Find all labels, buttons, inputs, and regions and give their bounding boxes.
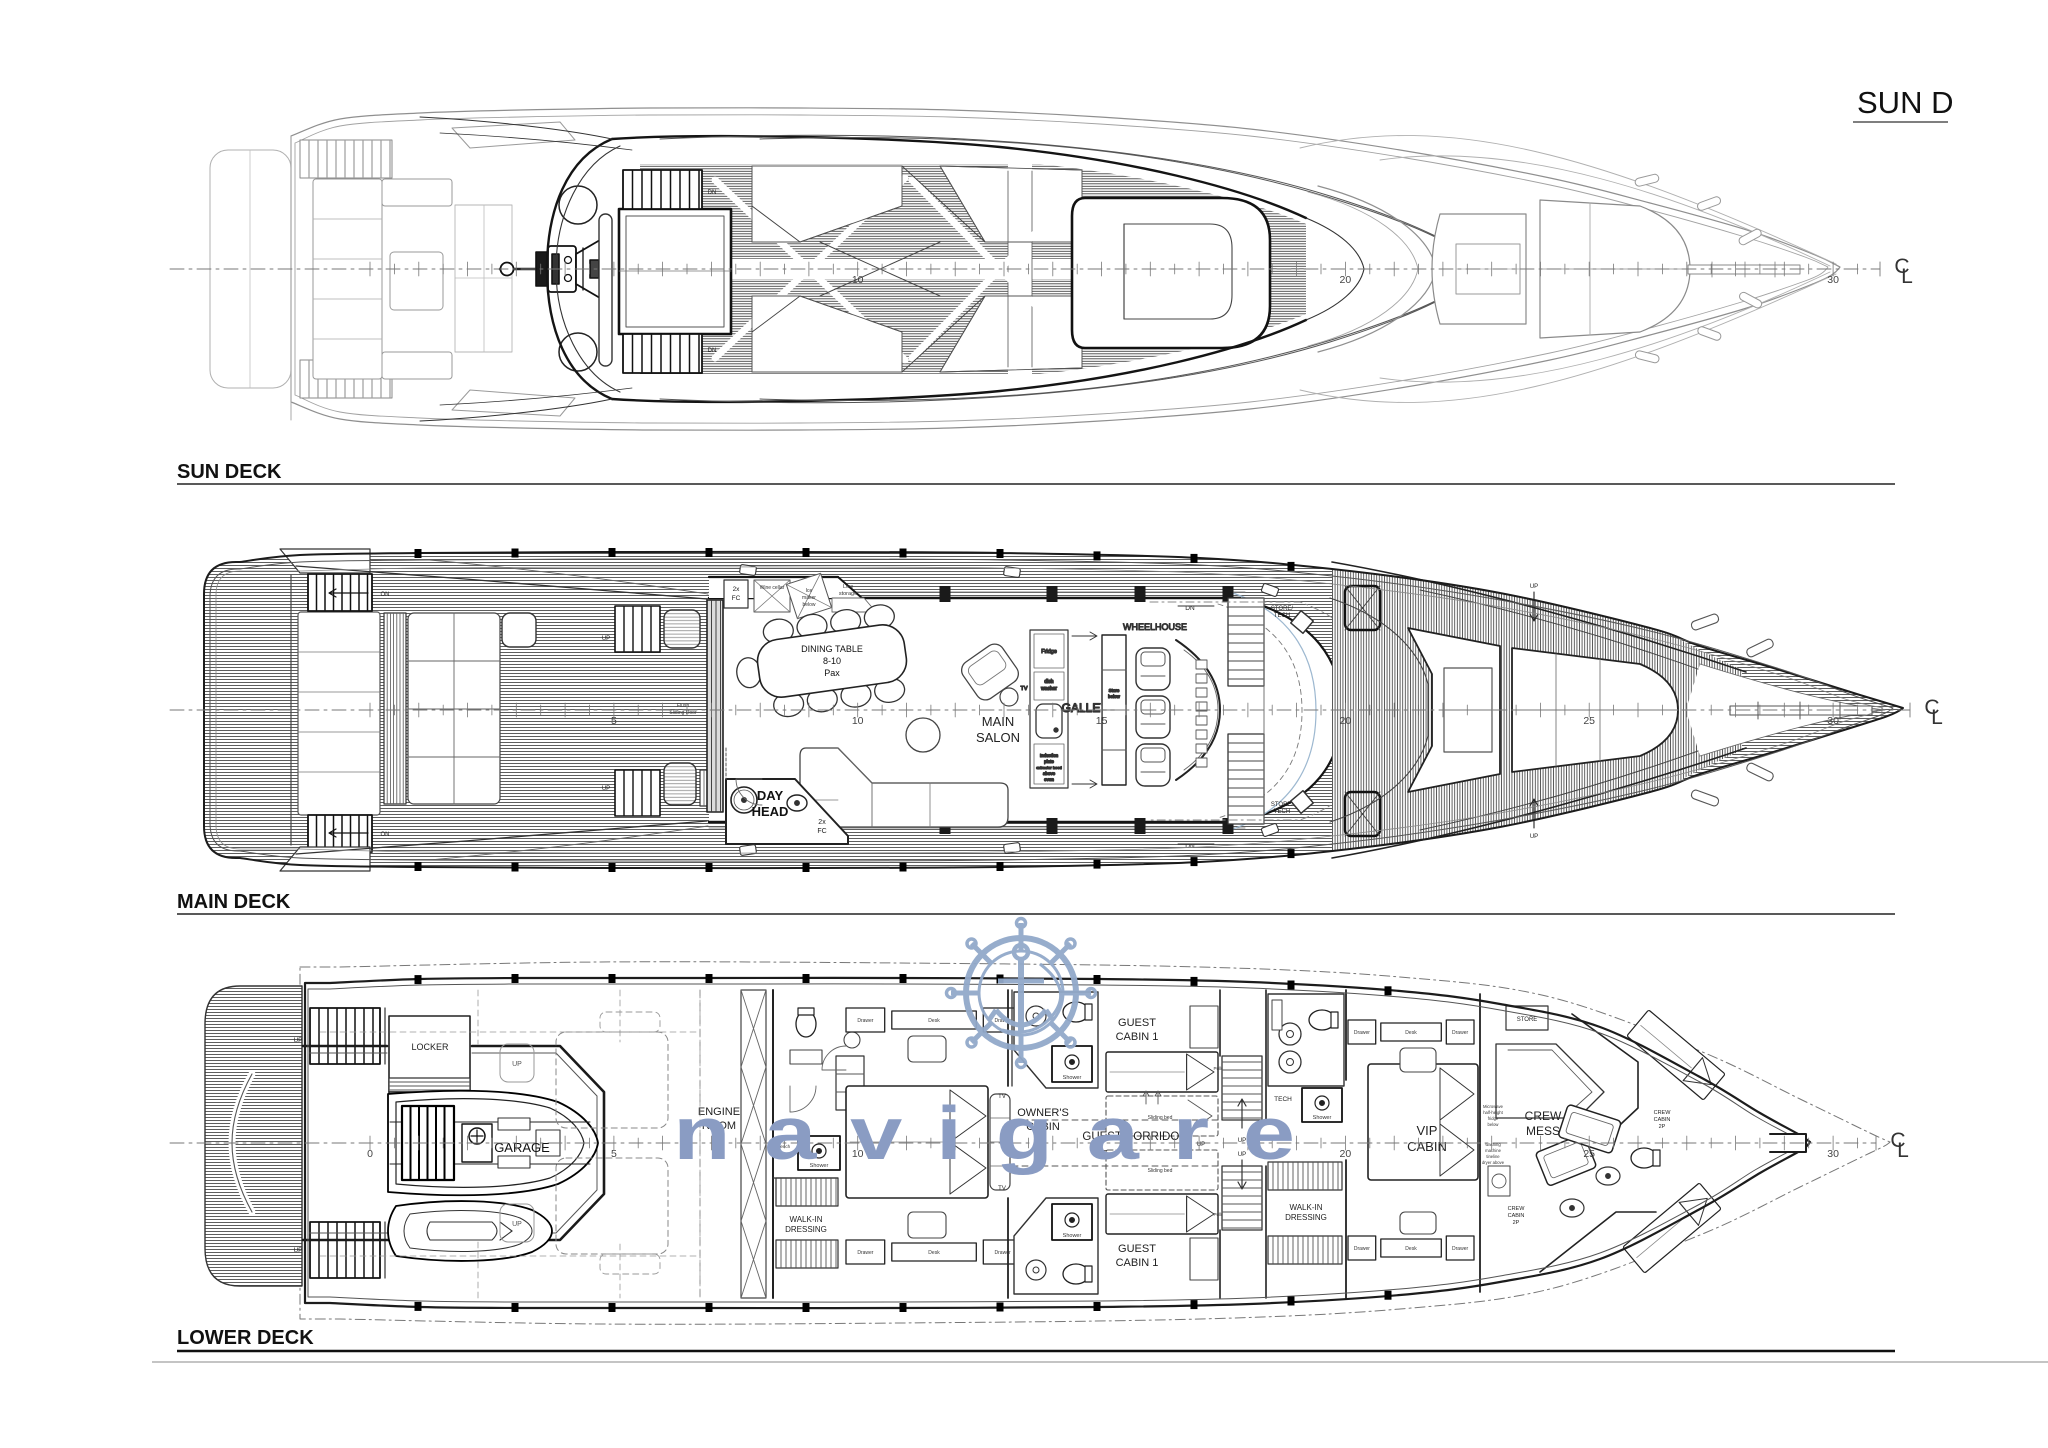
svg-text:DINING TABLE: DINING TABLE xyxy=(801,644,863,654)
svg-text:navigare: navigare xyxy=(673,1091,1329,1175)
svg-text:ON: ON xyxy=(381,592,390,598)
svg-text:FC: FC xyxy=(732,595,741,602)
svg-text:VIP: VIP xyxy=(1417,1123,1438,1138)
svg-text:20: 20 xyxy=(1340,274,1352,286)
svg-text:10: 10 xyxy=(852,274,864,286)
svg-text:CREW: CREW xyxy=(1525,1109,1562,1123)
svg-text:maker: maker xyxy=(802,595,816,601)
svg-text:30: 30 xyxy=(1827,1148,1839,1160)
svg-text:0: 0 xyxy=(367,1148,373,1160)
svg-text:Microwave: Microwave xyxy=(1483,1104,1504,1109)
svg-text:GARAGE: GARAGE xyxy=(494,1140,550,1155)
svg-text:MAIN DECK: MAIN DECK xyxy=(177,891,291,913)
svg-text:WHEELHOUSE: WHEELHOUSE xyxy=(1123,622,1187,632)
svg-text:Shower: Shower xyxy=(1063,1075,1082,1081)
svg-text:CREW: CREW xyxy=(1508,1206,1526,1212)
svg-text:Drawer: Drawer xyxy=(1452,1030,1468,1036)
svg-text:UP: UP xyxy=(512,1061,522,1068)
svg-text:STORE/: STORE/ xyxy=(1271,802,1294,808)
svg-text:Desk: Desk xyxy=(928,1250,940,1256)
svg-text:Shower: Shower xyxy=(1063,1233,1082,1239)
svg-text:washer: washer xyxy=(1041,686,1057,692)
svg-text:Induction: Induction xyxy=(1040,753,1059,758)
svg-text:plate: plate xyxy=(1044,759,1054,764)
svg-text:DN: DN xyxy=(708,190,717,196)
svg-text:GUEST: GUEST xyxy=(1118,1017,1156,1029)
svg-text:CABIN: CABIN xyxy=(1654,1117,1671,1123)
svg-text:MAIN: MAIN xyxy=(982,714,1015,729)
svg-text:Store: Store xyxy=(1109,688,1120,693)
svg-text:UP: UP xyxy=(293,1247,302,1254)
svg-text:machine: machine xyxy=(1485,1148,1501,1153)
svg-text:half-height: half-height xyxy=(1483,1110,1503,1115)
svg-text:25: 25 xyxy=(1583,1148,1595,1160)
svg-text:MESS: MESS xyxy=(1526,1124,1560,1138)
svg-text:CABIN 1: CABIN 1 xyxy=(1116,1031,1159,1043)
svg-text:above: above xyxy=(1043,771,1056,776)
svg-text:2P: 2P xyxy=(1513,1220,1520,1226)
svg-text:below: below xyxy=(1488,1122,1500,1127)
svg-text:L: L xyxy=(1931,706,1943,729)
svg-text:TECH: TECH xyxy=(1274,809,1290,815)
svg-text:HEAD: HEAD xyxy=(752,804,789,819)
svg-text:below: below xyxy=(1108,694,1121,699)
svg-text:WALK-IN: WALK-IN xyxy=(1289,1203,1322,1212)
svg-text:20: 20 xyxy=(1340,1148,1352,1160)
svg-text:2P: 2P xyxy=(1659,1124,1666,1130)
svg-text:Desk: Desk xyxy=(1405,1246,1417,1252)
svg-text:2x: 2x xyxy=(733,586,741,593)
svg-text:TV: TV xyxy=(998,1186,1006,1192)
svg-text:Desk: Desk xyxy=(928,1018,940,1024)
svg-text:Low: Low xyxy=(843,584,853,590)
svg-text:extractor hood: extractor hood xyxy=(1036,765,1062,770)
svg-text:DRESSING: DRESSING xyxy=(1285,1213,1327,1222)
svg-text:SUN DECK: SUN DECK xyxy=(177,461,282,483)
svg-text:dish: dish xyxy=(1044,679,1053,685)
svg-text:DRESSING: DRESSING xyxy=(785,1225,827,1234)
svg-text:Wine cellar: Wine cellar xyxy=(760,585,785,591)
svg-text:oven: oven xyxy=(1044,777,1054,782)
svg-text:UP: UP xyxy=(1530,584,1538,590)
svg-text:UP: UP xyxy=(512,1221,522,1228)
svg-text:L: L xyxy=(1897,1139,1909,1162)
svg-text:Drawer: Drawer xyxy=(857,1018,873,1024)
svg-text:GUEST: GUEST xyxy=(1118,1243,1156,1255)
svg-text:30: 30 xyxy=(1827,274,1839,286)
svg-text:dryer above: dryer above xyxy=(1482,1160,1505,1165)
svg-text:SUN D: SUN D xyxy=(1857,85,1953,120)
svg-text:Pax: Pax xyxy=(824,668,840,678)
svg-text:Flush: Flush xyxy=(677,703,689,709)
svg-text:SALON: SALON xyxy=(976,730,1020,745)
svg-text:30: 30 xyxy=(1827,715,1839,727)
svg-text:UP: UP xyxy=(602,636,610,642)
svg-text:25: 25 xyxy=(1583,715,1595,727)
svg-text:storage: storage xyxy=(839,591,857,597)
svg-text:CREW: CREW xyxy=(1654,1110,1672,1116)
svg-text:CABIN: CABIN xyxy=(1407,1139,1447,1154)
svg-text:UP: UP xyxy=(293,1037,302,1044)
svg-text:WALK-IN: WALK-IN xyxy=(789,1215,822,1224)
svg-text:UP: UP xyxy=(602,786,610,792)
svg-text:15: 15 xyxy=(1096,715,1108,727)
svg-text:L: L xyxy=(1901,265,1913,288)
svg-text:5: 5 xyxy=(611,715,617,727)
svg-text:Drawer: Drawer xyxy=(857,1250,873,1256)
svg-text:CABIN 1: CABIN 1 xyxy=(1116,1257,1159,1269)
svg-text:8-10: 8-10 xyxy=(823,656,841,666)
svg-text:below: below xyxy=(802,602,815,608)
svg-text:FC: FC xyxy=(817,828,826,835)
svg-text:20: 20 xyxy=(1340,715,1352,727)
svg-text:ON: ON xyxy=(381,832,390,838)
svg-text:Drawer: Drawer xyxy=(1354,1030,1370,1036)
svg-text:CABIN: CABIN xyxy=(1508,1213,1525,1219)
svg-text:UP: UP xyxy=(1530,834,1538,840)
svg-text:2x: 2x xyxy=(818,819,826,826)
svg-text:tineline: tineline xyxy=(1486,1154,1500,1159)
svg-text:fridge: fridge xyxy=(1488,1116,1499,1121)
svg-text:Desk: Desk xyxy=(1405,1030,1417,1036)
svg-text:Drawer: Drawer xyxy=(1452,1246,1468,1252)
svg-text:Drawer: Drawer xyxy=(1354,1246,1370,1252)
svg-text:5: 5 xyxy=(611,1148,617,1160)
svg-text:LOCKER: LOCKER xyxy=(411,1042,449,1052)
svg-text:10: 10 xyxy=(852,715,864,727)
svg-text:STORE/: STORE/ xyxy=(1271,606,1294,612)
svg-text:Sliding Door: Sliding Door xyxy=(669,710,697,716)
svg-text:TV: TV xyxy=(1020,686,1027,692)
svg-text:DN: DN xyxy=(708,348,717,354)
svg-text:STORE: STORE xyxy=(1517,1017,1538,1023)
svg-text:DAY: DAY xyxy=(757,788,784,803)
svg-text:Ice: Ice xyxy=(806,588,813,594)
svg-text:Fridge: Fridge xyxy=(1041,649,1057,655)
svg-text:LOWER DECK: LOWER DECK xyxy=(177,1327,314,1349)
svg-text:TECH: TECH xyxy=(1274,613,1290,619)
